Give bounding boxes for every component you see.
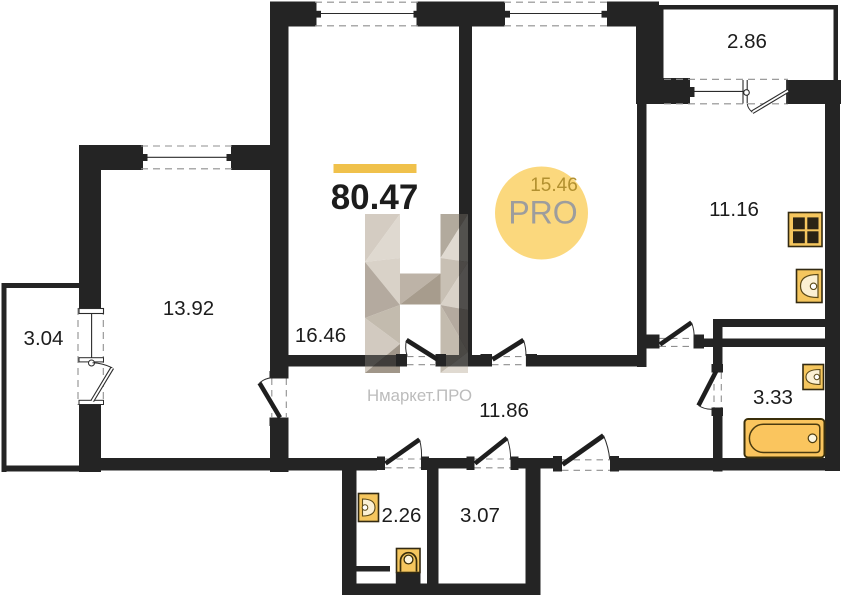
svg-text:Нмаркет.ПРО: Нмаркет.ПРО	[367, 386, 472, 405]
svg-text:2.86: 2.86	[727, 30, 767, 53]
svg-text:11.16: 11.16	[709, 198, 759, 221]
svg-text:16.46: 16.46	[295, 324, 346, 347]
svg-text:3.07: 3.07	[460, 504, 500, 527]
svg-text:80.47: 80.47	[331, 178, 419, 217]
svg-text:2.26: 2.26	[382, 504, 422, 527]
svg-text:15.46: 15.46	[530, 175, 578, 196]
svg-text:3.04: 3.04	[24, 327, 64, 350]
svg-text:PRO: PRO	[508, 195, 577, 231]
svg-text:13.92: 13.92	[163, 297, 214, 320]
svg-text:11.86: 11.86	[479, 399, 529, 422]
svg-text:3.33: 3.33	[753, 386, 793, 409]
